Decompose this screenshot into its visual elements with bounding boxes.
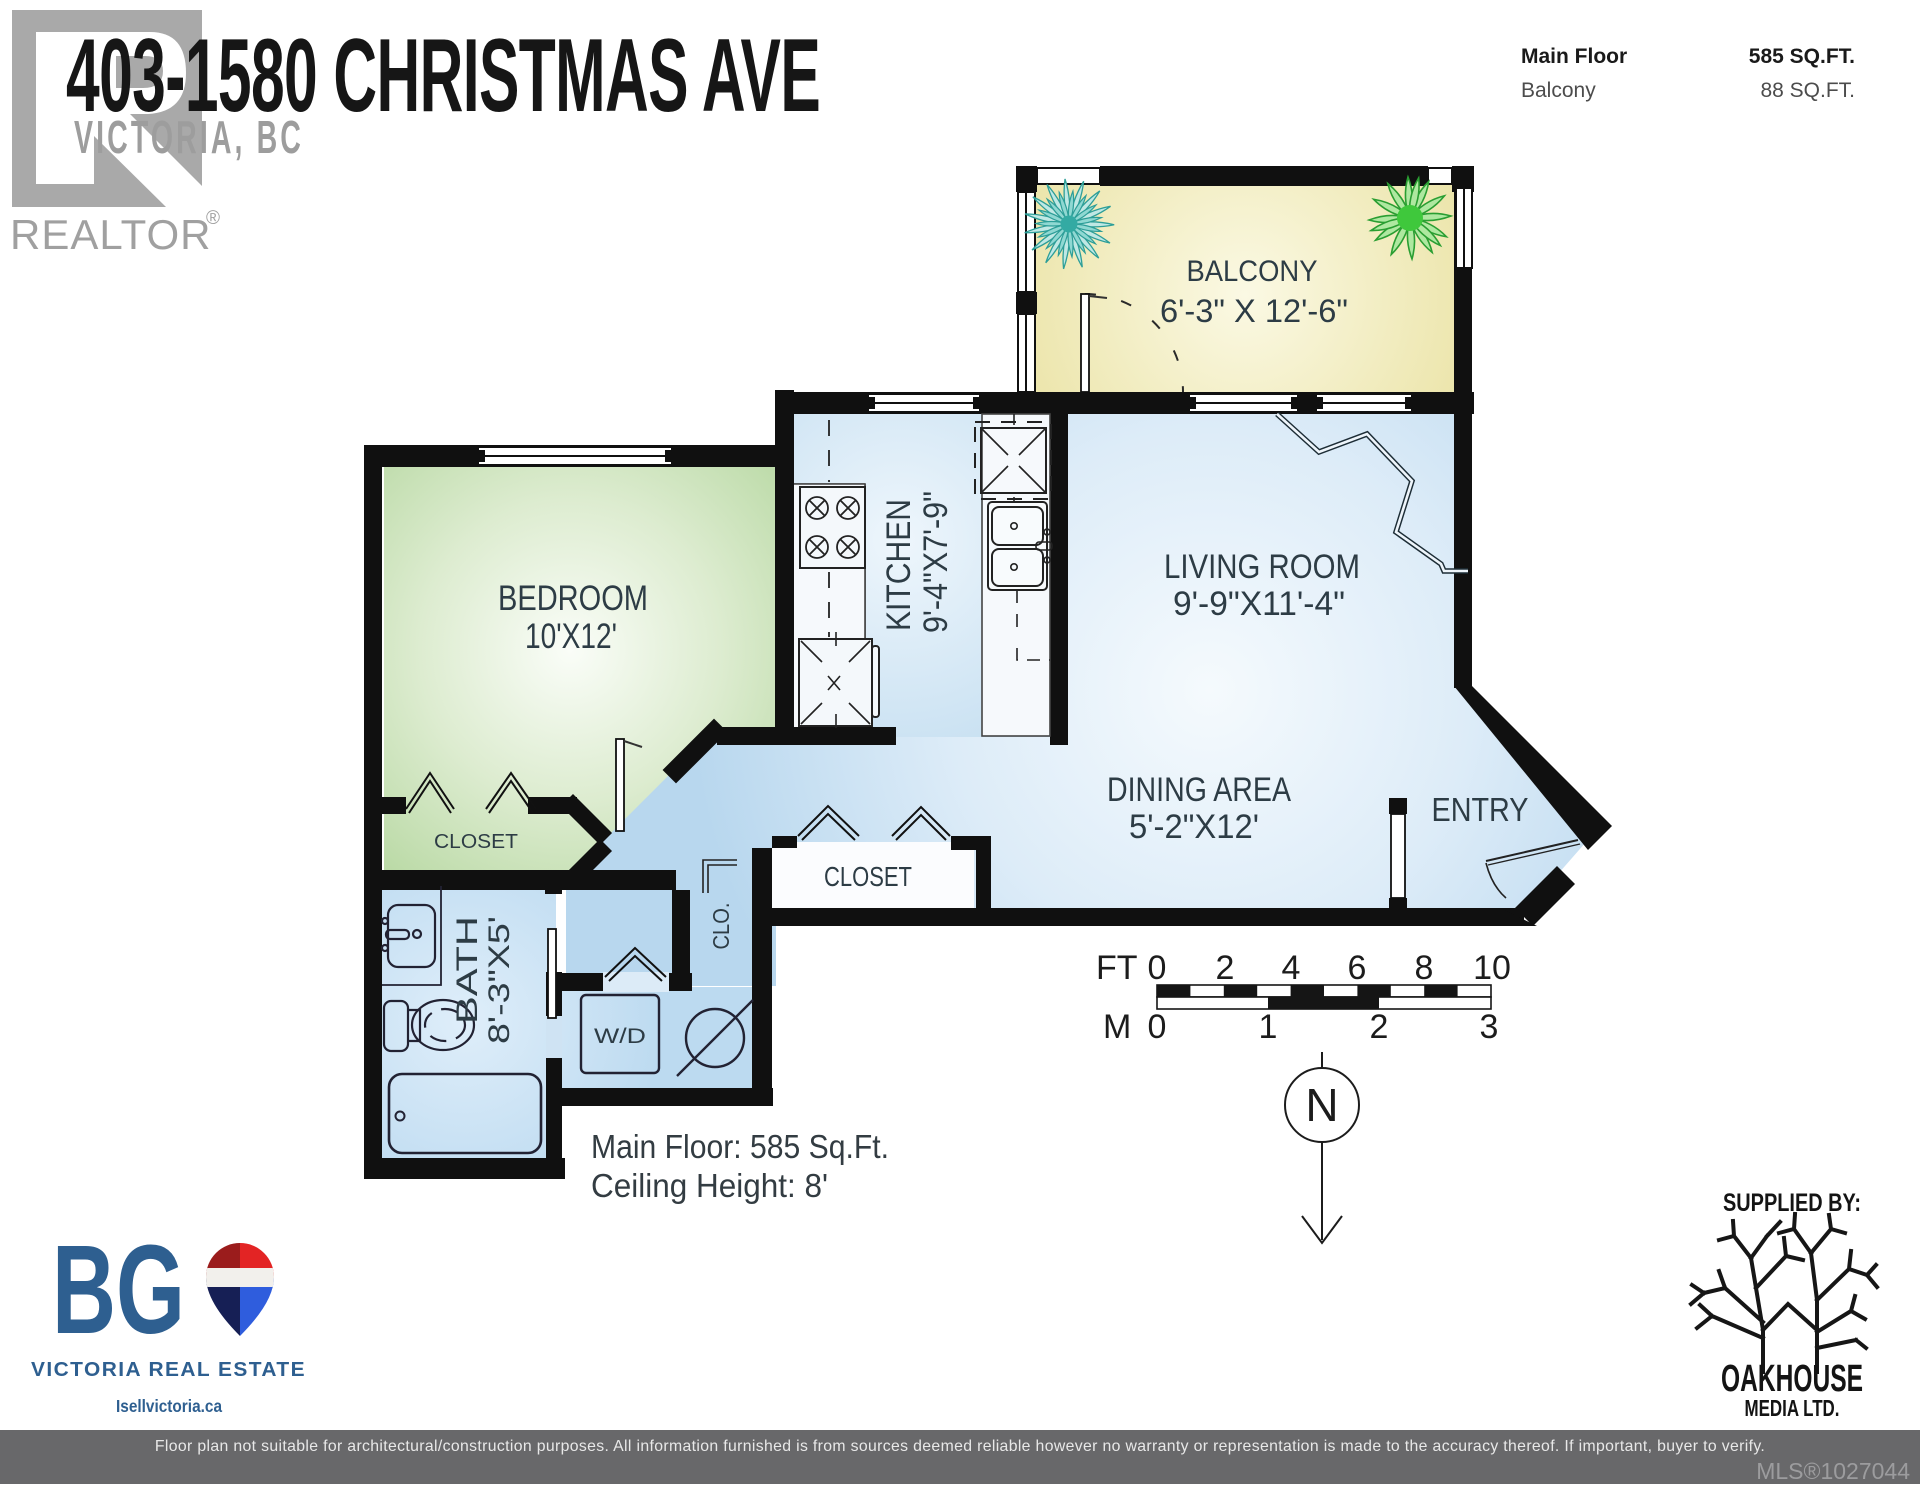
svg-text:0: 0 <box>1148 1008 1167 1046</box>
svg-text:2: 2 <box>1216 949 1235 987</box>
svg-text:M: M <box>1103 1008 1131 1046</box>
svg-text:5'-2"X12': 5'-2"X12' <box>1129 808 1259 846</box>
svg-text:4: 4 <box>1282 949 1301 987</box>
svg-text:N: N <box>1305 1079 1338 1131</box>
svg-text:10'X12': 10'X12' <box>525 617 617 656</box>
svg-text:6'-3" X 12'-6": 6'-3" X 12'-6" <box>1160 293 1348 329</box>
svg-text:CLOSET: CLOSET <box>434 831 518 853</box>
svg-text:CLOSET: CLOSET <box>824 861 912 892</box>
svg-text:Isellvictoria.ca: Isellvictoria.ca <box>116 1396 222 1416</box>
svg-text:OAKHOUSE: OAKHOUSE <box>1721 1358 1863 1400</box>
svg-text:DINING AREA: DINING AREA <box>1107 771 1291 809</box>
svg-text:BG: BG <box>52 1219 185 1360</box>
svg-text:6: 6 <box>1348 949 1367 987</box>
svg-text:1: 1 <box>1259 1008 1278 1046</box>
svg-text:ENTRY: ENTRY <box>1432 791 1529 828</box>
svg-text:8: 8 <box>1415 949 1434 987</box>
svg-text:LIVING ROOM: LIVING ROOM <box>1164 548 1360 586</box>
svg-text:FT: FT <box>1096 949 1138 987</box>
svg-text:10: 10 <box>1473 949 1511 987</box>
svg-text:3: 3 <box>1480 1008 1499 1046</box>
svg-text:MEDIA LTD.: MEDIA LTD. <box>1745 1395 1840 1421</box>
svg-text:9'-4"X7'-9": 9'-4"X7'-9" <box>917 491 955 633</box>
svg-text:0: 0 <box>1148 949 1167 987</box>
svg-text:CLO.: CLO. <box>708 903 734 950</box>
svg-text:8'-3"X5': 8'-3"X5' <box>483 916 516 1044</box>
svg-text:SUPPLIED BY:: SUPPLIED BY: <box>1723 1189 1861 1217</box>
svg-text:BALCONY: BALCONY <box>1187 255 1318 288</box>
svg-text:W/D: W/D <box>594 1025 646 1048</box>
svg-text:KITCHEN: KITCHEN <box>880 499 918 631</box>
svg-text:9'-9"X11'-4": 9'-9"X11'-4" <box>1173 585 1345 623</box>
svg-text:Ceiling Height: 8': Ceiling Height: 8' <box>591 1167 828 1204</box>
svg-text:VICTORIA REAL ESTATE: VICTORIA REAL ESTATE <box>31 1358 306 1381</box>
svg-text:2: 2 <box>1370 1008 1389 1046</box>
svg-text:Main Floor: 585 Sq.Ft.: Main Floor: 585 Sq.Ft. <box>591 1128 889 1165</box>
svg-text:BEDROOM: BEDROOM <box>498 579 648 618</box>
svg-text:BATH: BATH <box>451 916 484 1024</box>
